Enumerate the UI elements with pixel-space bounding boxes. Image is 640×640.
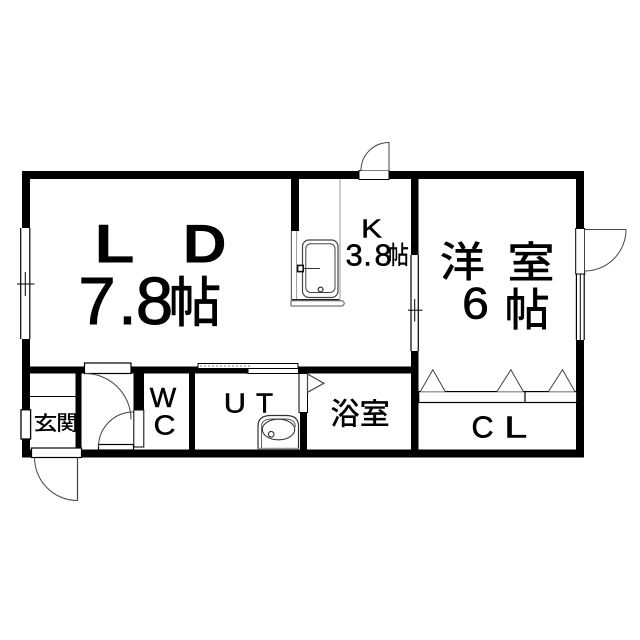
svg-text:W: W bbox=[150, 382, 177, 413]
svg-text:8: 8 bbox=[136, 264, 173, 339]
svg-text:3: 3 bbox=[345, 237, 362, 272]
svg-text:C: C bbox=[154, 410, 176, 441]
svg-text:T: T bbox=[256, 387, 273, 418]
svg-text:.: . bbox=[118, 264, 137, 339]
svg-text:L: L bbox=[504, 410, 527, 445]
svg-text:7: 7 bbox=[78, 264, 115, 339]
svg-text:6: 6 bbox=[462, 278, 489, 328]
svg-text:U: U bbox=[224, 388, 246, 419]
svg-text:C: C bbox=[471, 411, 493, 445]
svg-text:D: D bbox=[183, 213, 227, 275]
svg-text:.: . bbox=[363, 237, 372, 272]
svg-text:8: 8 bbox=[374, 237, 391, 272]
